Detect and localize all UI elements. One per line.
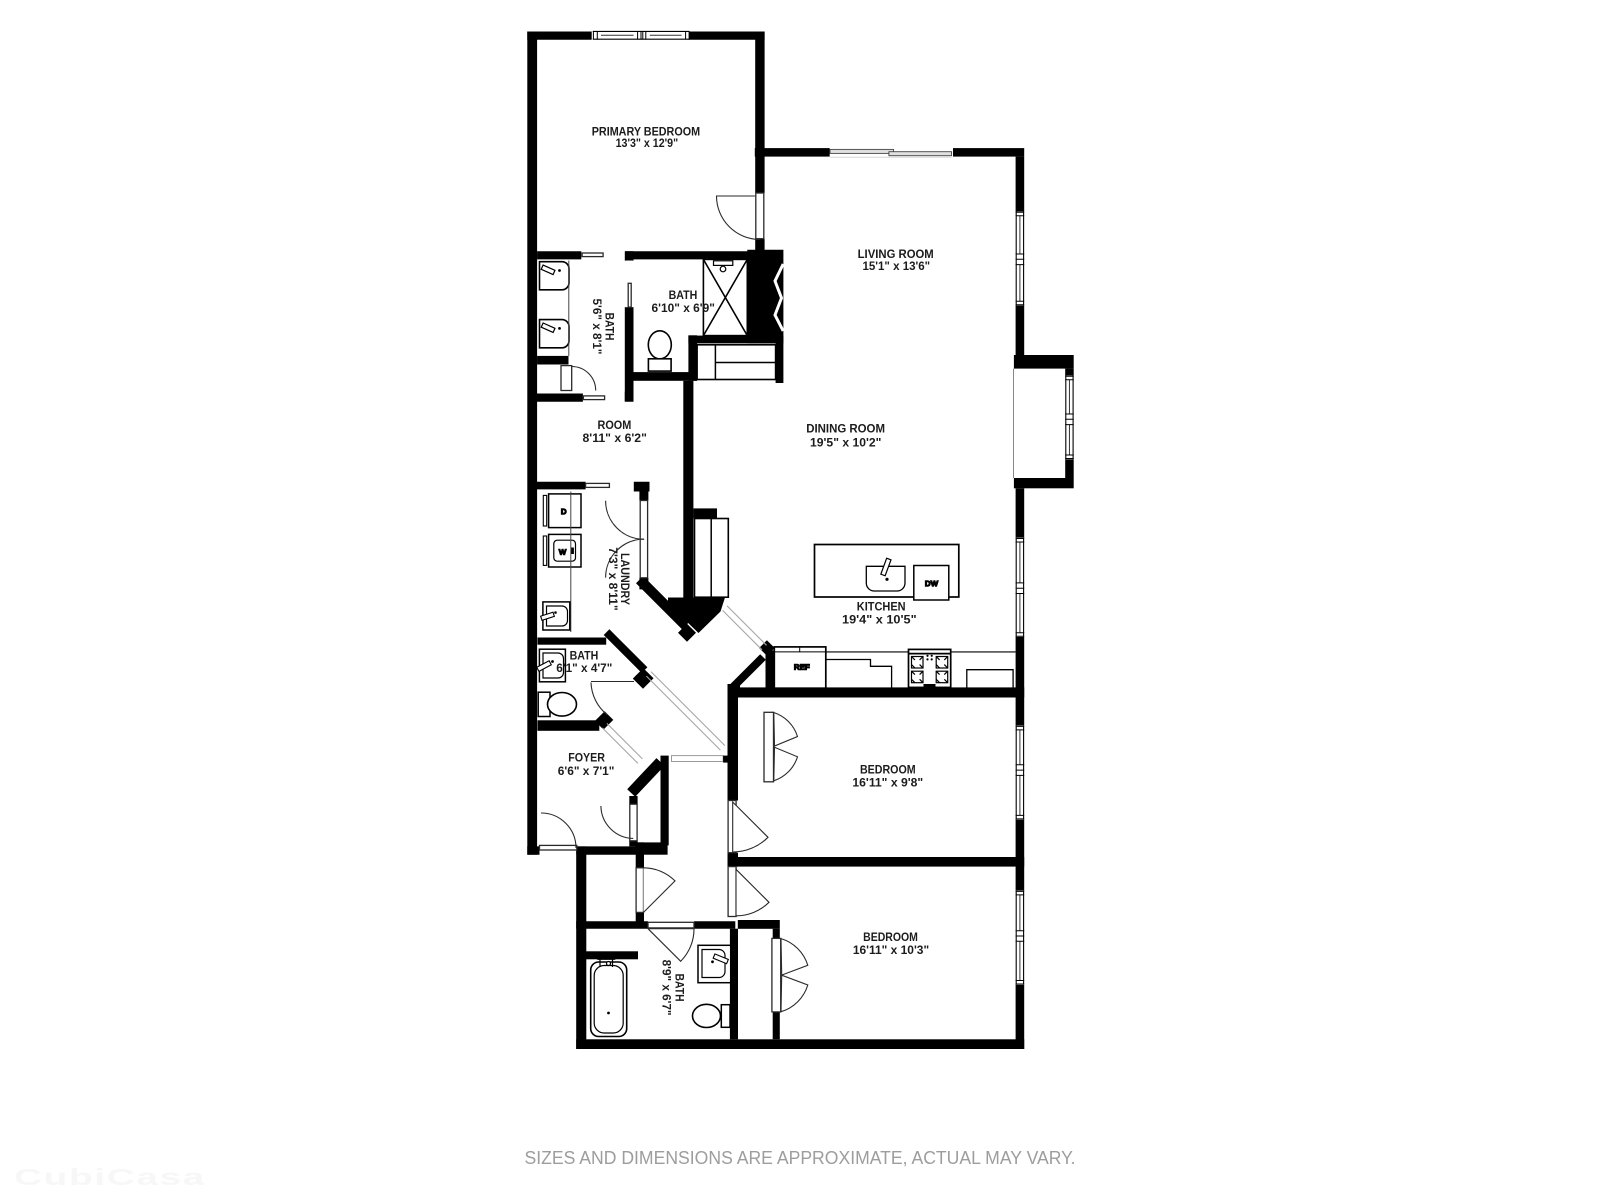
svg-text:16'11" x 10'3": 16'11" x 10'3" (853, 943, 929, 957)
svg-text:CubiCasa: CubiCasa (14, 1164, 206, 1190)
svg-text:BATH: BATH (669, 288, 698, 302)
svg-text:5'6" x 8'1": 5'6" x 8'1" (590, 299, 604, 355)
svg-text:8'9" x 6'7": 8'9" x 6'7" (659, 960, 673, 1016)
svg-text:ROOM: ROOM (598, 418, 632, 432)
svg-text:W: W (559, 548, 567, 557)
svg-text:BEDROOM: BEDROOM (863, 930, 918, 944)
svg-text:BATH: BATH (673, 974, 687, 1002)
svg-text:FOYER: FOYER (568, 750, 605, 764)
svg-text:6'10" x 6'9": 6'10" x 6'9" (652, 301, 715, 315)
svg-text:REF: REF (794, 663, 810, 672)
svg-text:6'6" x 7'1": 6'6" x 7'1" (558, 764, 615, 778)
svg-text:D: D (561, 507, 567, 516)
svg-text:DW: DW (925, 579, 939, 588)
svg-text:8'11" x 6'2": 8'11" x 6'2" (583, 431, 647, 445)
svg-text:DINING ROOM: DINING ROOM (806, 422, 885, 436)
svg-text:19'4" x 10'5": 19'4" x 10'5" (842, 612, 917, 626)
svg-text:19'5" x 10'2": 19'5" x 10'2" (810, 435, 881, 449)
svg-text:16'11" x 9'8": 16'11" x 9'8" (852, 775, 923, 789)
svg-text:SIZES AND DIMENSIONS ARE APPRO: SIZES AND DIMENSIONS ARE APPROXIMATE, AC… (525, 1147, 1076, 1168)
svg-text:6'1" x 4'7": 6'1" x 4'7" (556, 661, 612, 675)
svg-text:13'3" x 12'9": 13'3" x 12'9" (616, 136, 679, 150)
svg-text:7'3" x 8'11": 7'3" x 8'11" (606, 547, 620, 610)
svg-text:15'1" x 13'6": 15'1" x 13'6" (862, 259, 930, 273)
